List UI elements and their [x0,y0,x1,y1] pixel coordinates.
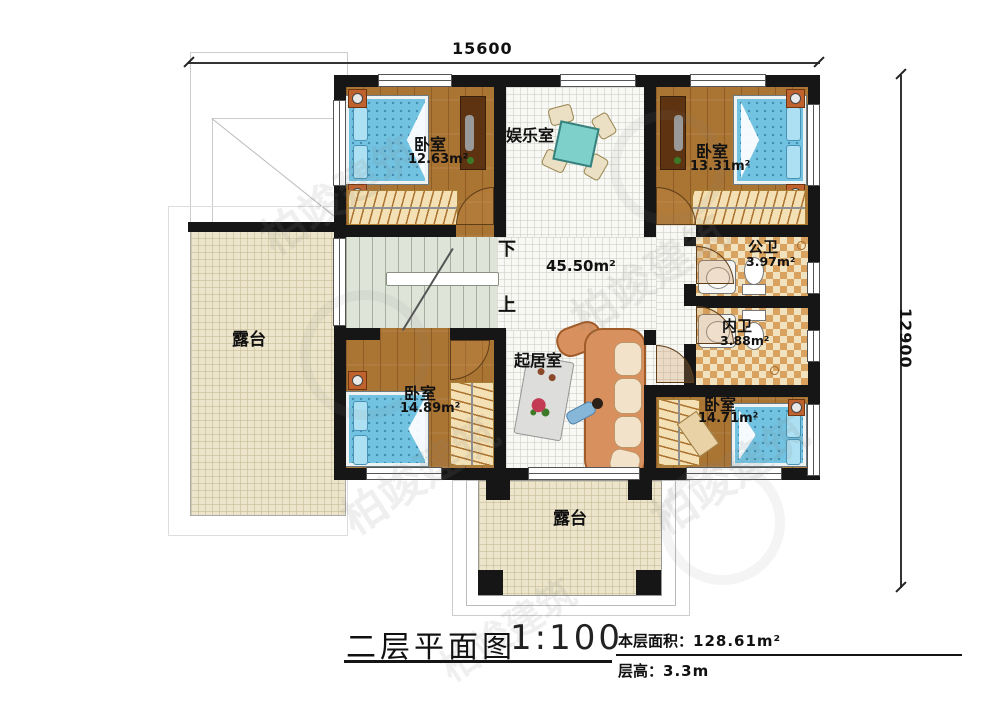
bedroom-tl-name: 卧室 [414,136,446,154]
stairs-handrail [386,272,499,286]
floor-area-label: 本层面积： [618,632,693,650]
window-right-public-bath [807,262,820,294]
hall-name: 起居室 [514,352,562,370]
bedroom-br-area: 14.71m² [698,412,758,426]
pillow [786,107,801,141]
entertainment-name: 娱乐室 [506,127,554,145]
window-top-bedroom-tr [690,74,766,87]
window-right-bedroom-tr [807,104,820,186]
window-right-bedroom-br [807,404,820,476]
sofa-cushion [614,342,642,376]
bedroom-tl-area: 12.63m² [408,153,468,167]
game-table [552,120,599,167]
nightstand [348,371,367,390]
sofa-cushion [614,378,642,414]
terrace-pillar-br [636,570,661,595]
wall-bath-left-1 [684,237,696,246]
title-underline [344,660,612,663]
lamp-icon [797,241,806,250]
dimension-right-label: 12900 [896,308,914,369]
window-left-bedroom-tl [333,100,346,186]
floor-area-value: 128.61m² [693,632,781,650]
roof-inner-top-line [212,118,346,119]
wall-bl-hall [494,328,506,468]
tv-icon [465,115,474,151]
terrace-left-name: 露台 [232,331,266,350]
wall-ent-tr [644,75,656,237]
lamp-icon [770,366,779,375]
terrace-left-floor [190,230,346,516]
floor-height-value: 3.3m [663,662,709,680]
pillow [353,145,368,179]
flower-icon [531,397,547,413]
terrace-pillar-tl [486,478,510,500]
roof-outline [190,52,348,227]
bedroom-tr-area: 13.31m² [690,160,750,174]
window-left-stairs [333,238,346,326]
person-figure-head [592,398,603,409]
wall-stairs-bottom-left [334,328,380,340]
window-bottom-bedroom-bl [366,467,442,480]
stairs-down-label: 下 [498,240,516,260]
window-right-private-bath [807,330,820,362]
floor-area-row: 本层面积：128.61m² [618,630,781,651]
window-top-bedroom-tl [378,74,452,87]
wall-under-tr [696,225,820,237]
terrace-pillar-tr [628,478,652,500]
dimension-line-top [188,62,820,64]
title-divider [616,654,962,656]
floor-plan-canvas: 卧室 12.63m² 娱乐室 卧室 13.31m² 公卫 3.97m² 内卫 3… [0,0,1000,706]
wall-bath-divider [696,296,808,308]
plan-scale: 1:100 [510,618,623,658]
dimension-top-label: 15600 [452,40,513,58]
plant-icon [674,157,681,164]
toilet-tank-public [742,284,766,295]
window-top-hall [560,74,636,87]
pillow [353,435,368,465]
wall-hall-br-upper [644,330,656,345]
cup-icon [548,374,556,382]
wall-tl-ent [494,75,506,237]
bedroom-bl-name: 卧室 [404,385,436,403]
nightstand [348,89,367,108]
bedroom-tr-name: 卧室 [696,143,728,161]
desk-tv-tr [660,96,686,170]
pillow [786,439,801,465]
window-bottom-bedroom-br [686,467,782,480]
hall-area: 45.50m² [546,258,616,275]
floor-height-label: 层高： [618,662,663,680]
wall-bath-left-2 [684,284,696,306]
public-bath-area: 3.97m² [746,255,795,269]
closet-tr [692,190,806,225]
terrace-left-top-wall [188,222,340,232]
private-bath-area: 3.88m² [720,334,769,348]
sofa-cushion [614,416,642,448]
wall-under-tl [334,225,456,237]
closet-bl [450,382,494,466]
wall-hall-br-lower [644,385,656,468]
terrace-door [528,467,640,480]
nightstand [788,399,805,416]
stairs-up-label: 上 [498,296,516,316]
tv-icon [674,115,683,151]
pillow [353,107,368,141]
bedroom-bl-area: 14.89m² [400,402,460,416]
terrace-bottom-name: 露台 [553,510,587,529]
nightstand [786,89,805,108]
pillow [353,401,368,431]
pillow [786,145,801,179]
closet-tl [348,190,458,225]
floor-height-row: 层高：3.3m [618,660,709,681]
terrace-pillar-bl [478,570,503,595]
